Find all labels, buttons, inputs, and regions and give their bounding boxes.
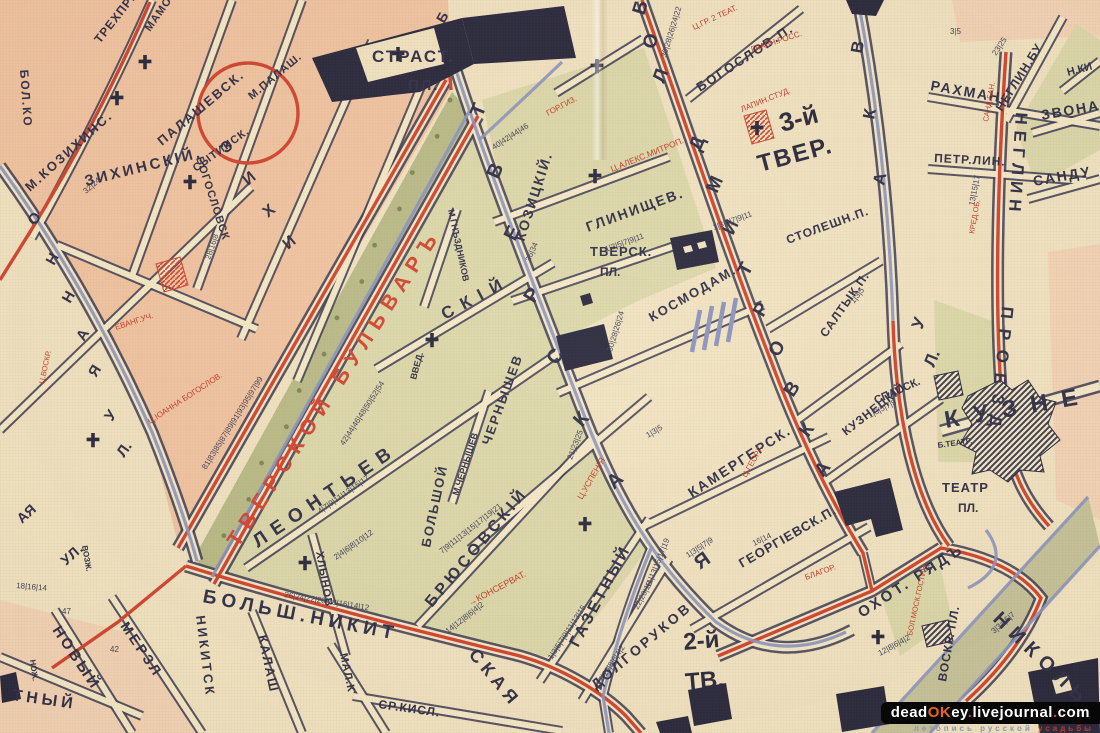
house-numbers: 47 bbox=[62, 607, 71, 616]
hatched-building bbox=[934, 371, 963, 400]
district-label: 2-й bbox=[682, 626, 720, 656]
square-label: ПЛ. bbox=[408, 77, 439, 94]
watermark-part: com bbox=[1058, 704, 1090, 721]
city-map: ТВЕРСКОЙ БУЛЬВАРЪБОЛЬШ.НИКИТСКАЯЛЕОНТЬЕВ… bbox=[0, 0, 1100, 733]
square-label: СТРАСТ. bbox=[372, 47, 455, 66]
watermark-url: deadOKey.livejournal.com bbox=[881, 702, 1100, 724]
watermark-part: OK bbox=[928, 704, 952, 721]
boulevard-tree bbox=[435, 134, 440, 139]
watermark: deadOKey.livejournal.com летопись русско… bbox=[881, 702, 1100, 733]
watermark-tagline: летопись русской усадьбы bbox=[881, 724, 1100, 733]
boulevard-tree bbox=[322, 352, 327, 357]
boulevard-tree bbox=[359, 279, 364, 284]
square-label: ПЛ. bbox=[600, 265, 620, 279]
house-numbers: 3|5 bbox=[950, 27, 962, 36]
boulevard-tree bbox=[297, 388, 302, 393]
watermark-tagline-left: летопись русской bbox=[914, 724, 1033, 733]
square-label: ТЕАТР bbox=[942, 480, 989, 495]
district-label: ТВ. bbox=[684, 666, 725, 696]
map-canvas: ТВЕРСКОЙ БУЛЬВАРЪБОЛЬШ.НИКИТСКАЯЛЕОНТЬЕВ… bbox=[0, 0, 1100, 733]
watermark-part: ey bbox=[951, 704, 968, 721]
boulevard-tree bbox=[284, 424, 289, 429]
boulevard-tree bbox=[397, 207, 402, 212]
boulevard-tree bbox=[335, 315, 340, 320]
boulevard-tree bbox=[448, 98, 453, 103]
watermark-tagline-right: усадьбы bbox=[1038, 724, 1094, 733]
watermark-part: livejournal bbox=[972, 704, 1053, 721]
watermark-part: dead bbox=[891, 704, 928, 721]
boulevard-tree bbox=[259, 461, 264, 466]
boulevard-tree bbox=[372, 243, 377, 248]
boulevard-tree bbox=[410, 170, 415, 175]
square-label: ПЛ. bbox=[958, 501, 978, 515]
house-numbers: 42 bbox=[110, 645, 119, 654]
